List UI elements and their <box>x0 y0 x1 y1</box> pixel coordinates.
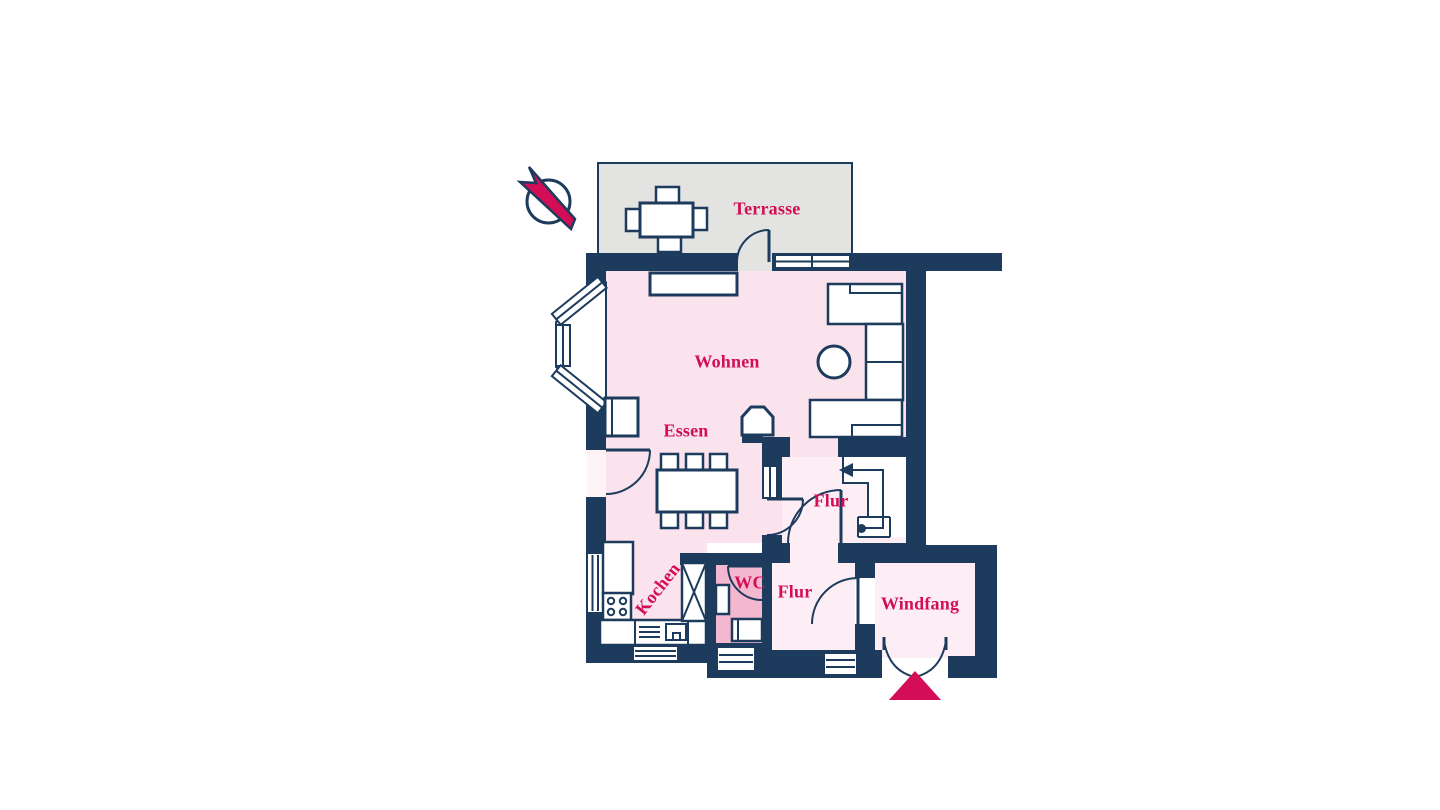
dining-set <box>657 454 737 528</box>
floorplan-canvas: Terrasse Wohnen Essen Kochen WC Flur Flu… <box>0 0 1440 810</box>
north-indicator-icon <box>520 167 575 229</box>
label-wohnen: Wohnen <box>694 352 759 373</box>
floorplan-drawing <box>0 0 1440 810</box>
counter <box>603 542 633 594</box>
toilet <box>732 619 762 641</box>
label-windfang: Windfang <box>881 594 959 615</box>
terrace-chair <box>693 208 707 230</box>
window <box>717 647 755 671</box>
wall-niche <box>764 467 776 497</box>
stove <box>603 593 631 620</box>
label-terrasse: Terrasse <box>734 199 801 220</box>
bay-window <box>552 277 607 413</box>
dining-chair <box>686 512 703 528</box>
window <box>775 255 850 268</box>
tall-cabinet <box>682 563 706 621</box>
dining-chair <box>661 512 678 528</box>
entrance-arrow-icon <box>889 671 941 700</box>
label-wc: WC <box>734 573 765 594</box>
sideboard <box>650 273 737 295</box>
dining-table <box>657 470 737 512</box>
washbasin <box>716 585 729 614</box>
label-flur-lower: Flur <box>778 582 813 603</box>
label-flur-upper: Flur <box>814 491 849 512</box>
dining-chair <box>710 512 727 528</box>
coffee-table <box>818 346 850 378</box>
dining-chair <box>661 454 678 470</box>
dining-chair <box>686 454 703 470</box>
label-essen: Essen <box>663 421 708 442</box>
dining-chair <box>710 454 727 470</box>
window <box>587 553 604 613</box>
chimney <box>742 407 773 435</box>
room-flur-lower <box>772 563 855 650</box>
terrace-chair <box>656 187 679 204</box>
window <box>633 646 678 661</box>
terrace-area <box>598 163 852 254</box>
window <box>824 653 857 675</box>
bay-sideboard <box>605 398 638 436</box>
